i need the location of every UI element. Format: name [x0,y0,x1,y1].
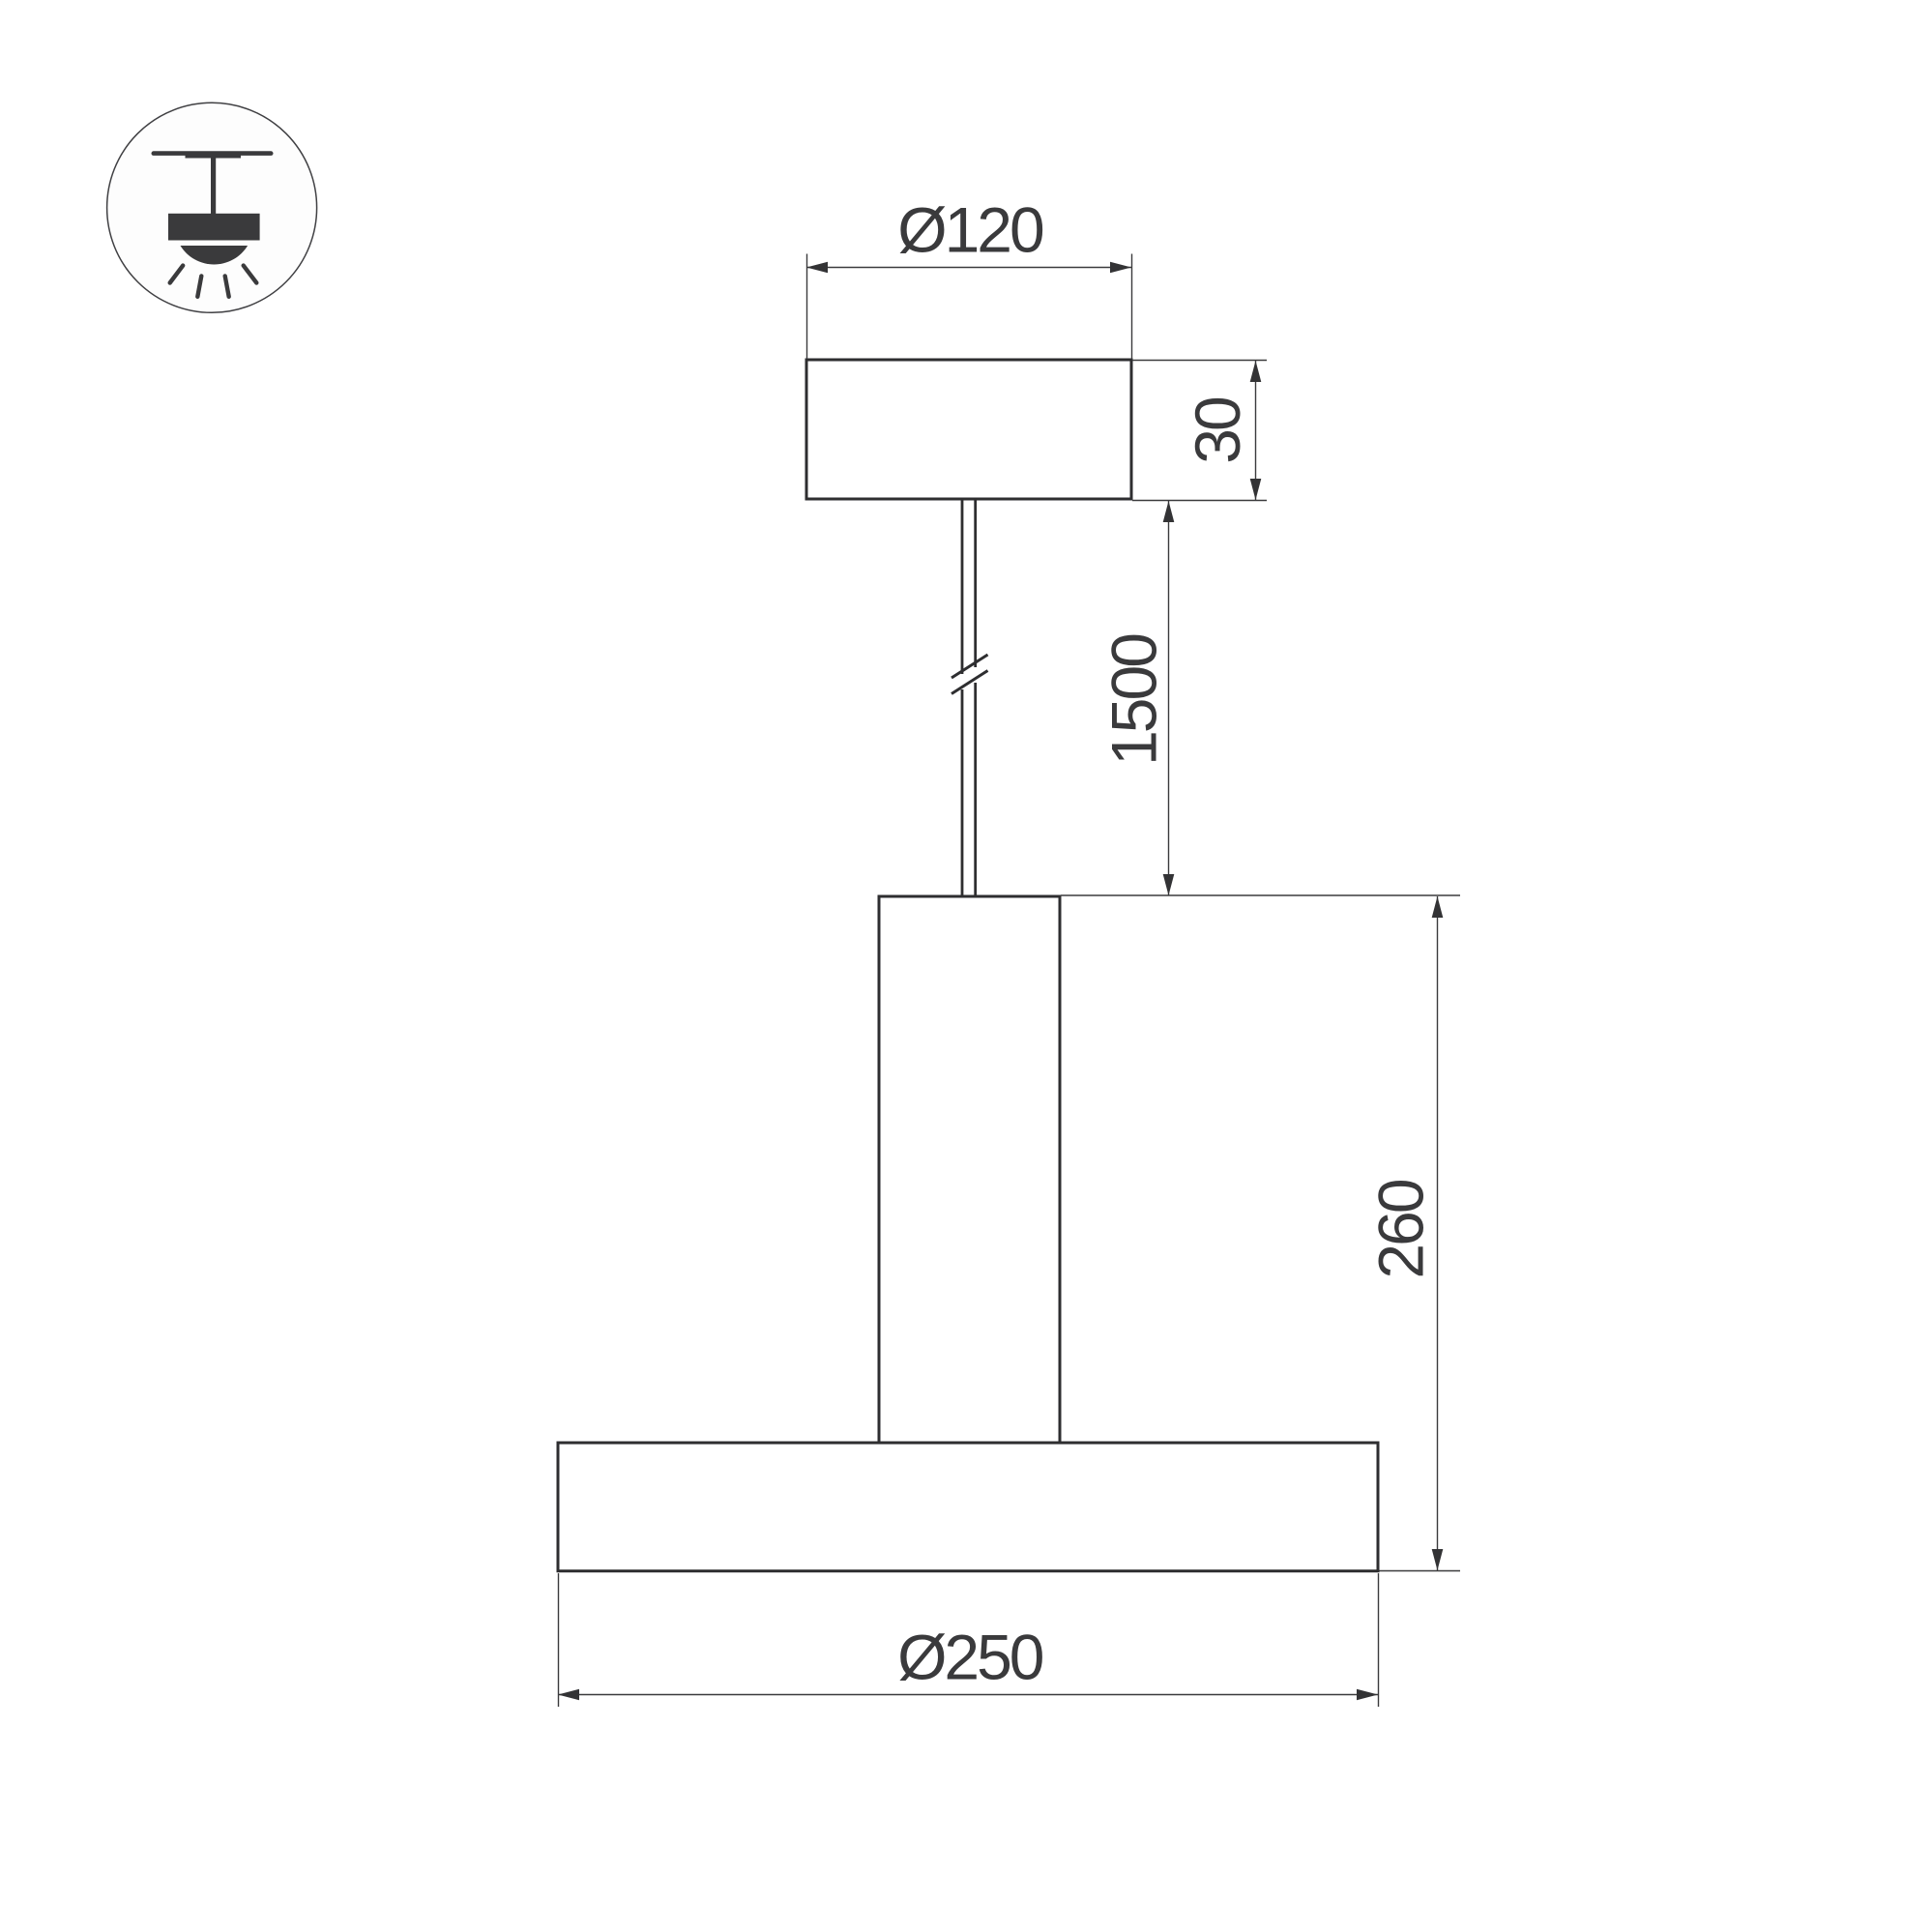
svg-text:30: 30 [1182,397,1253,464]
svg-text:1500: 1500 [1098,634,1170,766]
svg-text:Ø120: Ø120 [897,194,1043,266]
svg-text:260: 260 [1365,1180,1437,1278]
svg-text:Ø250: Ø250 [897,1621,1043,1692]
